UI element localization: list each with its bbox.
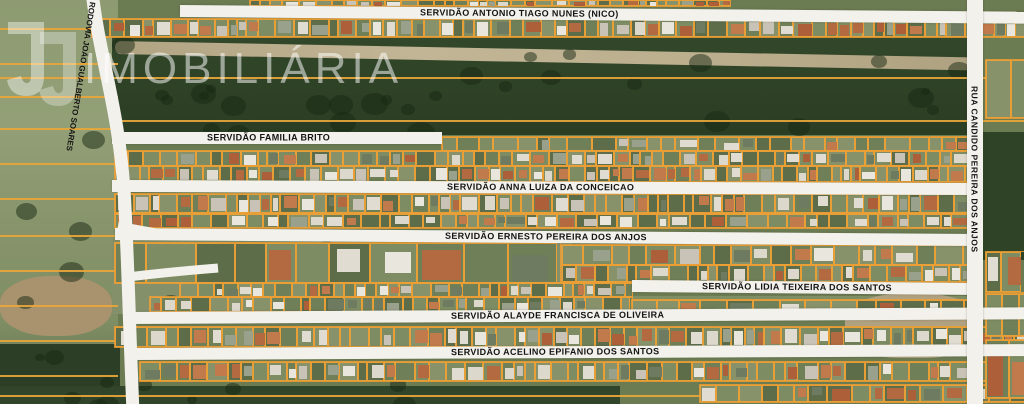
lot-parcel (698, 265, 708, 282)
lot-parcel (518, 283, 531, 297)
building-roof (781, 26, 793, 35)
building-roof (702, 388, 715, 401)
lot-parcel (884, 385, 905, 402)
lot-parcel (355, 283, 365, 297)
lot-parcel (278, 151, 296, 166)
building-roof (153, 196, 159, 209)
lot-parcel (416, 151, 435, 166)
jj-imobiliaria-logo (0, 18, 84, 114)
lot-parcel (464, 243, 508, 283)
building-roof (846, 267, 852, 278)
lot-parcel (430, 166, 447, 182)
lot-parcel (222, 327, 236, 347)
building-roof (833, 366, 841, 376)
road-servidao-familia-brito: SERVIDÃO FAMILIA BRITO (112, 132, 442, 144)
lot-parcel (785, 362, 797, 381)
lot-parcel (537, 214, 557, 228)
lot-parcel (799, 151, 812, 166)
building-roof (868, 198, 878, 209)
building-roof (810, 219, 817, 227)
building-roof (528, 217, 536, 225)
lot-parcel (133, 327, 147, 347)
building-roof (365, 299, 371, 308)
lot-parcel (505, 214, 526, 228)
building-roof (940, 366, 950, 376)
building-roof (672, 217, 688, 225)
building-roof (130, 25, 140, 36)
lot-row (140, 362, 1024, 381)
lot-parcel (301, 297, 310, 312)
lot-parcel (499, 151, 512, 166)
road-label-antonio-tiago: SERVIDÃO ANTONIO TIAGO NUNES (NICO) (420, 8, 619, 19)
lot-parcel (241, 362, 253, 381)
lot-parcel (365, 283, 376, 297)
lot-parcel (645, 19, 659, 37)
lot-parcel (770, 137, 791, 151)
lot-parcel (634, 194, 648, 213)
building-roof (460, 331, 468, 344)
lot-parcel (986, 252, 1001, 292)
parcel-boundary-line (0, 305, 118, 307)
lot-parcel (479, 283, 490, 297)
building-roof (375, 300, 383, 311)
building-roof (505, 368, 514, 379)
lot-parcel (266, 243, 296, 283)
lot-parcel (715, 137, 739, 151)
building-roof (915, 170, 927, 180)
building-roof (362, 154, 373, 164)
building-roof (526, 22, 541, 32)
lot-row (442, 137, 978, 151)
building-roof (228, 289, 237, 296)
building-roof (401, 21, 411, 34)
lot-parcel (847, 214, 868, 228)
lot-parcel (417, 243, 464, 283)
building-roof (542, 140, 549, 150)
lot-parcel (774, 265, 785, 282)
lot-parcel (401, 0, 418, 6)
lot-parcel (805, 214, 817, 228)
building-roof (574, 2, 584, 6)
building-roof (431, 196, 437, 206)
building-roof (857, 268, 869, 279)
lot-parcel (450, 194, 460, 213)
lot-parcel (440, 19, 453, 37)
building-roof (367, 197, 379, 210)
building-roof (190, 22, 198, 34)
lot-parcel (518, 137, 537, 151)
lot-parcel (729, 151, 742, 166)
lot-parcel (190, 362, 207, 381)
building-roof (165, 300, 175, 310)
lot-parcel (535, 362, 551, 381)
lot-parcel (677, 362, 692, 381)
lot-parcel (731, 327, 745, 347)
lot-parcel (211, 214, 228, 228)
lot-parcel (693, 0, 707, 6)
building-roof (250, 200, 260, 211)
lot-parcel (860, 166, 876, 182)
building-roof (723, 329, 731, 342)
lot-parcel (115, 194, 134, 213)
building-roof (545, 171, 552, 180)
building-roof (255, 333, 265, 345)
lot-parcel (837, 137, 855, 151)
building-roof (488, 334, 496, 345)
lot-parcel (650, 166, 666, 182)
lot-parcel (700, 245, 714, 265)
building-roof (181, 197, 190, 207)
lot-parcel (472, 327, 486, 347)
building-roof (501, 286, 507, 296)
building-roof (776, 271, 783, 281)
building-roof (278, 21, 291, 33)
building-roof (736, 197, 744, 211)
building-roof (927, 217, 939, 225)
lot-parcel (924, 214, 941, 228)
lot-parcel (429, 362, 446, 381)
lot-parcel (210, 297, 228, 312)
parcel-boundary-line (0, 235, 118, 237)
building-roof (818, 196, 828, 206)
building-roof (512, 255, 548, 281)
parcel-boundary-line (115, 120, 1024, 122)
building-roof (831, 332, 843, 346)
lot-parcel (863, 194, 879, 213)
lot-parcel (296, 151, 311, 166)
building-roof (732, 168, 740, 177)
lot-parcel (583, 245, 612, 265)
lot-parcel (920, 385, 943, 402)
building-roof (828, 23, 836, 35)
lot-parcel (228, 362, 241, 381)
building-roof (498, 217, 505, 223)
building-roof (638, 198, 648, 212)
lot-parcel (537, 137, 549, 151)
lot-parcel (329, 19, 338, 37)
building-roof (661, 200, 666, 211)
lot-parcel (684, 194, 693, 213)
lot-parcel (853, 265, 870, 282)
lot-parcel (457, 137, 479, 151)
building-roof (650, 2, 656, 6)
lot-parcel (748, 265, 764, 282)
building-roof (682, 1, 692, 5)
building-roof (545, 217, 556, 226)
building-roof (279, 170, 288, 178)
lot-parcel (191, 327, 208, 347)
tree-clump (69, 222, 92, 241)
lot-parcel (511, 194, 521, 213)
lot-parcel (275, 283, 292, 297)
lot-parcel (594, 283, 611, 297)
lot-parcel (711, 194, 722, 213)
lot-parcel (909, 362, 929, 381)
lot-parcel (215, 19, 228, 37)
building-roof (118, 196, 129, 210)
building-roof (213, 330, 221, 344)
building-roof (267, 332, 280, 344)
lot-parcel (314, 194, 326, 213)
building-roof (810, 170, 816, 180)
building-roof (315, 154, 327, 163)
building-roof (519, 170, 527, 179)
lot-parcel (311, 151, 330, 166)
tree-clump (627, 78, 642, 90)
lot-parcel (758, 151, 775, 166)
lot-parcel (445, 0, 454, 6)
building-roof (645, 156, 651, 165)
lot-parcel (646, 0, 657, 6)
lot-parcel (474, 151, 485, 166)
lot-parcel (829, 214, 847, 228)
parcel-boundary-line (0, 163, 118, 165)
lot-parcel (344, 297, 362, 312)
building-roof (814, 248, 833, 261)
building-roof (181, 154, 194, 163)
building-roof (930, 169, 939, 179)
lot-parcel (275, 19, 294, 37)
lot-parcel (719, 0, 730, 6)
building-roof (236, 170, 244, 181)
lot-parcel (913, 166, 928, 182)
building-roof (654, 168, 666, 180)
lot-parcel (166, 327, 178, 347)
lot-parcel (898, 214, 908, 228)
lot-parcel (949, 265, 960, 282)
building-roof (149, 218, 160, 227)
building-roof (491, 169, 500, 180)
lot-parcel (294, 19, 310, 37)
lot-parcel (306, 283, 319, 297)
building-roof (840, 25, 850, 36)
tree-clump (927, 105, 939, 115)
lot-parcel (787, 214, 805, 228)
building-roof (704, 169, 715, 180)
building-roof (909, 272, 921, 280)
lot-parcel (794, 194, 812, 213)
building-roof (584, 219, 597, 226)
lot-parcel (442, 137, 457, 151)
lot-parcel (817, 166, 832, 182)
lot-parcel (716, 385, 739, 402)
lot-parcel (153, 19, 171, 37)
lot-parcel (604, 362, 618, 381)
lot-parcel (263, 283, 275, 297)
lot-parcel (762, 385, 778, 402)
building-roof (384, 335, 391, 344)
lot-parcel (555, 19, 567, 37)
lot-parcel (631, 19, 645, 37)
lot-parcel (191, 297, 210, 312)
building-roof (393, 154, 400, 164)
lot-parcel (554, 327, 567, 347)
building-roof (348, 300, 357, 308)
lot-parcel (110, 19, 124, 37)
lot-parcel (625, 283, 632, 297)
lot-parcel (319, 283, 334, 297)
lot-parcel (228, 297, 242, 312)
lot-parcel (933, 265, 949, 282)
building-roof (593, 250, 610, 261)
lot-parcel (876, 166, 887, 182)
building-roof (908, 390, 916, 400)
lot-parcel (290, 166, 305, 182)
lot-parcel (586, 0, 598, 6)
lot-parcel (629, 245, 646, 265)
building-roof (613, 169, 619, 177)
lot-row (115, 151, 978, 166)
building-roof (734, 250, 750, 263)
lot-parcel (288, 214, 309, 228)
lot-parcel (656, 327, 669, 347)
building-roof (598, 288, 610, 295)
building-roof (901, 169, 911, 180)
building-roof (511, 286, 518, 295)
lot-parcel (497, 194, 511, 213)
building-roof (448, 329, 456, 343)
lot-parcel (948, 166, 965, 182)
lot-parcel (879, 194, 898, 213)
lot-parcel (745, 327, 754, 347)
lot-parcel (115, 243, 146, 283)
building-roof (617, 268, 627, 279)
lot-parcel (730, 362, 747, 381)
building-roof (484, 218, 495, 225)
building-roof (387, 365, 395, 378)
lot-parcel (756, 137, 770, 151)
lot-parcel (1011, 60, 1024, 118)
building-roof (553, 153, 566, 164)
lot-parcel (612, 245, 629, 265)
lot-parcel (299, 194, 314, 213)
lot-parcel (280, 327, 297, 347)
lot-parcel (460, 194, 479, 213)
building-roof (244, 155, 256, 165)
building-roof (119, 169, 125, 180)
lot-parcel (474, 19, 491, 37)
lot-parcel (892, 245, 917, 265)
lot-parcel (696, 151, 713, 166)
building-roof (528, 330, 538, 342)
building-roof (917, 331, 930, 341)
lot-parcel (638, 0, 646, 6)
lot-parcel (323, 214, 343, 228)
tree-clump (499, 81, 513, 92)
lot-row (986, 252, 1024, 292)
building-roof (304, 301, 310, 310)
satellite-map-canvas[interactable]: SERVIDÃO ANTONIO TIAGO NUNES (NICO) SERV… (0, 0, 1024, 404)
building-roof (559, 169, 568, 179)
building-roof (244, 366, 252, 376)
lot-parcel (619, 166, 633, 182)
lot-parcel (514, 362, 525, 381)
building-roof (636, 170, 648, 179)
lot-parcel (778, 385, 794, 402)
lot-parcel (490, 283, 499, 297)
building-roof (485, 196, 495, 209)
building-roof (240, 287, 251, 294)
lot-parcel (846, 151, 865, 166)
lot-parcel (668, 194, 684, 213)
lot-parcel (434, 0, 445, 6)
building-roof (571, 200, 583, 211)
building-roof (578, 285, 584, 295)
building-roof (778, 198, 789, 210)
building-roof (337, 249, 360, 272)
lot-parcel (115, 327, 133, 347)
lot-parcel (263, 214, 278, 228)
lot-parcel (920, 194, 938, 213)
building-roof (556, 332, 567, 343)
building-roof (680, 249, 698, 264)
lot-parcel (370, 243, 417, 283)
building-roof (788, 367, 797, 378)
building-roof (487, 366, 500, 380)
lot-parcel (338, 19, 356, 37)
building-roof (1007, 24, 1015, 36)
lot-parcel (1001, 252, 1021, 292)
lot-parcel (690, 214, 705, 228)
lot-parcel (178, 327, 191, 347)
lot-parcel (508, 243, 557, 283)
lot-parcel (595, 362, 604, 381)
lot-parcel (606, 194, 622, 213)
building-roof (853, 23, 862, 34)
lot-parcel (629, 362, 647, 381)
building-roof (719, 155, 728, 164)
lot-parcel (462, 283, 479, 297)
building-roof (709, 2, 718, 6)
lot-parcel (567, 137, 592, 151)
building-roof (527, 2, 534, 6)
lot-parcel (447, 166, 459, 182)
lot-parcel (598, 0, 610, 6)
lot-parcel (567, 151, 585, 166)
lot-parcel (449, 283, 462, 297)
building-roof (387, 22, 395, 35)
building-roof (253, 288, 262, 296)
building-roof (758, 332, 763, 345)
lot-parcel (423, 214, 441, 228)
lot-parcel (618, 362, 629, 381)
building-roof (374, 2, 381, 6)
lot-parcel (851, 166, 860, 182)
lot-parcel (271, 297, 284, 312)
building-roof (239, 200, 248, 212)
lot-parcel (834, 245, 859, 265)
lot-parcel (478, 0, 487, 6)
building-roof (947, 388, 962, 399)
building-roof (870, 217, 875, 226)
lot-parcel (887, 265, 906, 282)
lot-parcel (785, 265, 801, 282)
lot-parcel (188, 19, 198, 37)
lot-parcel (395, 362, 415, 381)
lot-parcel (614, 151, 630, 166)
building-roof (832, 389, 850, 400)
lot-row (562, 265, 978, 282)
lot-parcel (159, 194, 177, 213)
building-roof (572, 155, 582, 164)
lot-parcel (343, 214, 361, 228)
building-roof (519, 332, 525, 342)
building-roof (707, 331, 718, 345)
lot-parcel (584, 283, 594, 297)
lot-parcel (124, 19, 143, 37)
lot-parcel (659, 19, 676, 37)
building-roof (418, 365, 429, 377)
